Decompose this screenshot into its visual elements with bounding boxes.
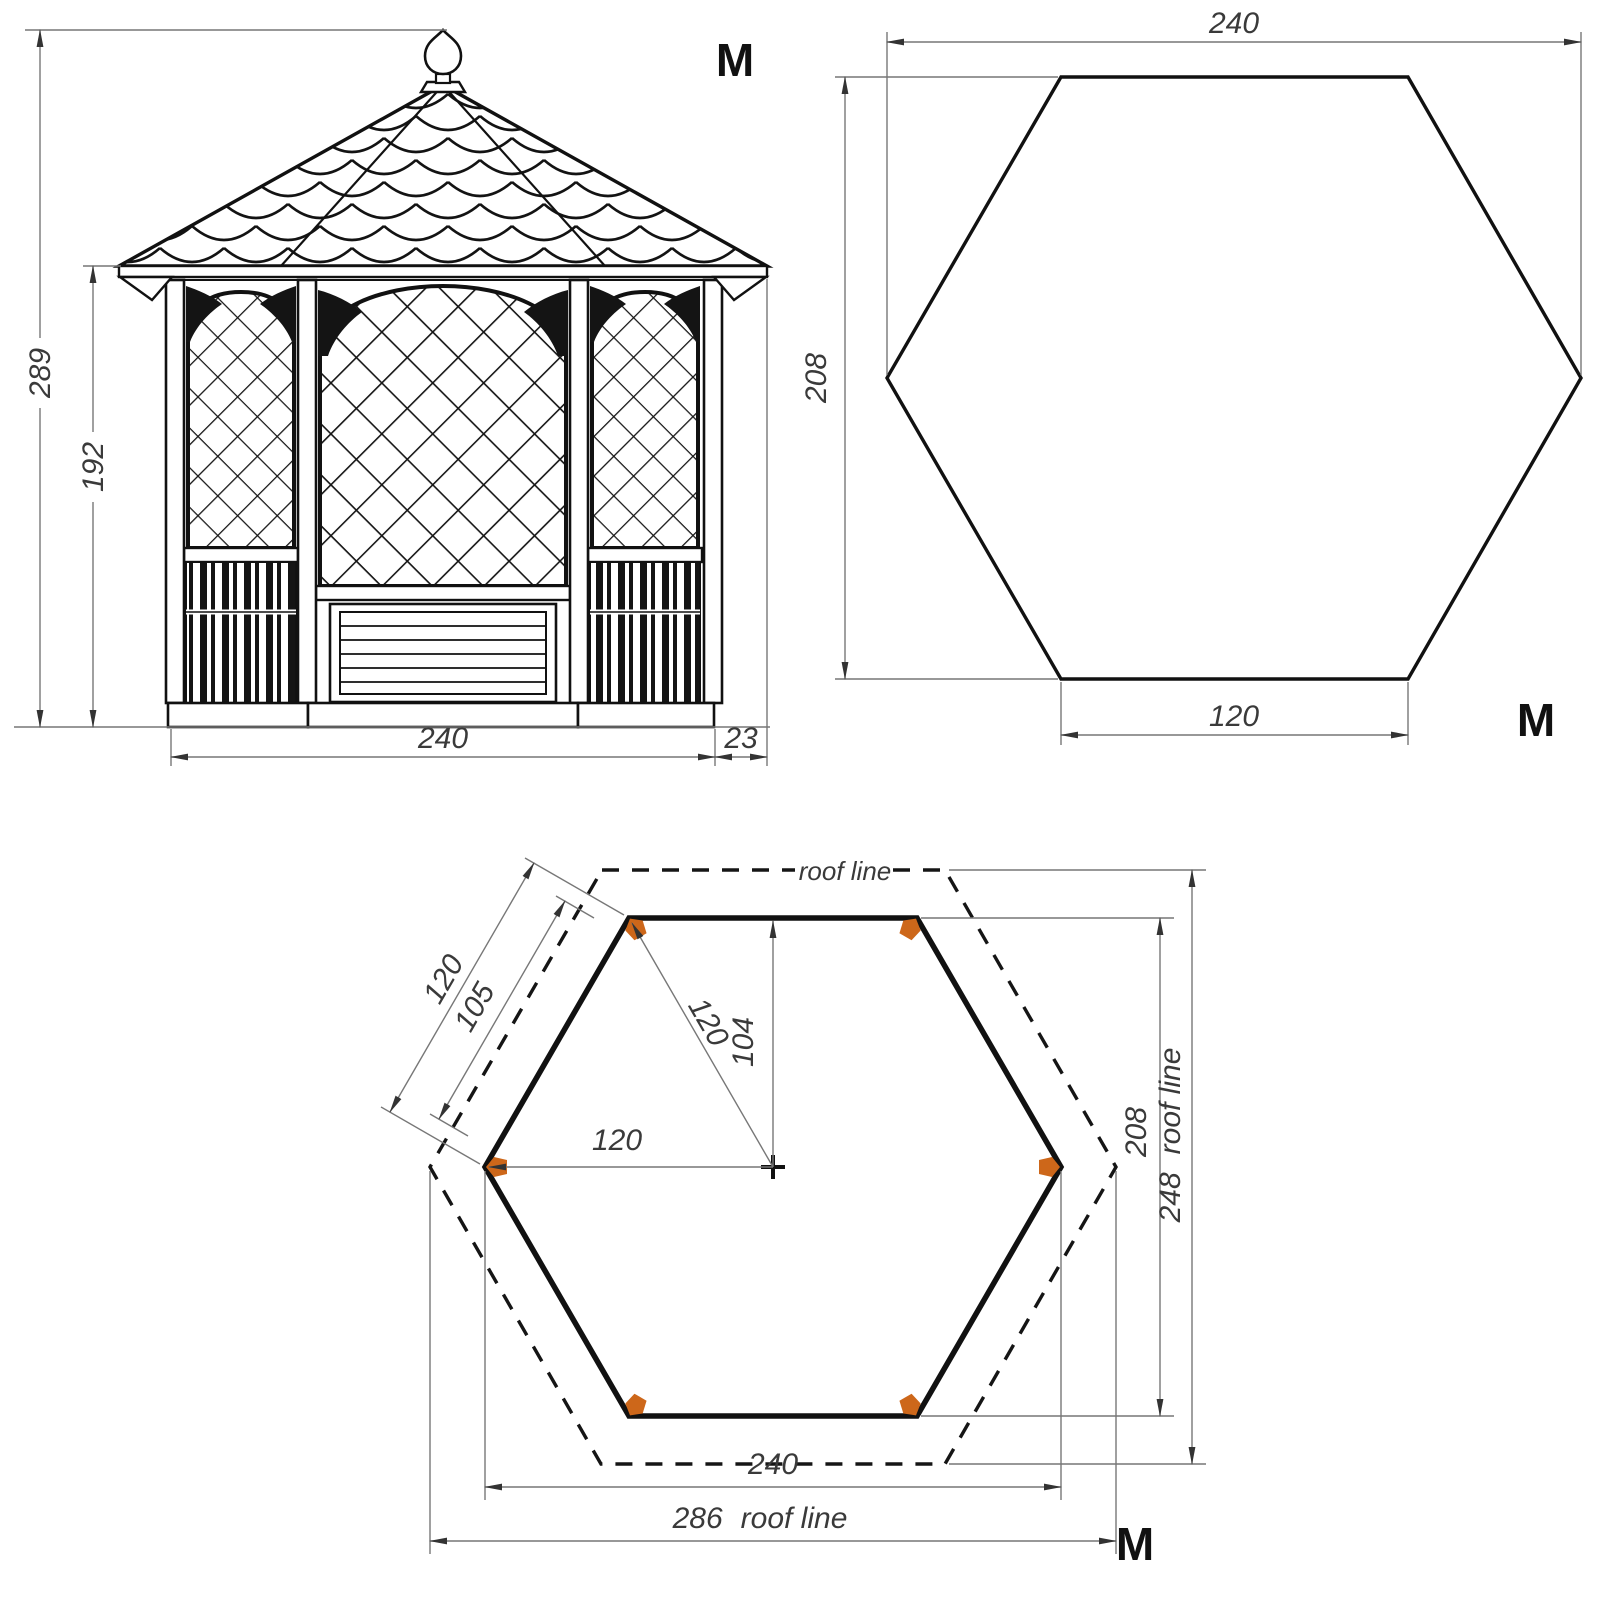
post-inner-left (298, 280, 316, 703)
mid-rail (316, 586, 570, 600)
roof-line-top-label: roof line (799, 856, 892, 886)
shingle-roof (119, 30, 767, 300)
eave-corner-left (120, 277, 172, 300)
dim-overhang-label: 23 (723, 722, 758, 755)
mid-rail (184, 548, 298, 562)
dim-roof-width-value: 286 (672, 1502, 723, 1535)
dim-width-label: 240 (1208, 7, 1259, 40)
lattice-right (592, 292, 698, 548)
drawing-sheet: 289 192 240 23 M 240 208 (0, 0, 1600, 1600)
view-marker-plan: M (1517, 694, 1555, 746)
dim-wall-height-label: 192 (77, 442, 110, 492)
dim-roof-height-label: 248roof line (1154, 1048, 1187, 1224)
dim-roof-height-value: 248 (1154, 1172, 1187, 1223)
front-elevation-view: 289 192 240 23 M (14, 30, 770, 766)
dim-width-label: 240 (747, 1448, 798, 1481)
dim-height-label: 208 (800, 353, 833, 404)
gazebo-technical-drawing: 289 192 240 23 M 240 208 (0, 0, 1600, 1600)
mid-rail (588, 548, 702, 562)
post-inner-right (570, 280, 588, 703)
dim-height-label: 208 (1120, 1107, 1153, 1158)
dim-side-line (390, 863, 534, 1112)
width-dimensions: 240 286roof line (430, 1171, 1116, 1554)
corner-post-right (704, 280, 722, 703)
skid-left (168, 703, 308, 727)
dim-total-height-label: 289 (24, 348, 57, 399)
lattice-left (188, 292, 294, 548)
center-lattice-panel (316, 286, 570, 702)
right-lattice-panel (588, 286, 702, 703)
dim-roof-width-label: 286roof line (672, 1502, 848, 1535)
skid-right (578, 703, 714, 727)
foundation-plan-view: roof line 120 104 120 (381, 856, 1206, 1570)
finial-ball (425, 30, 461, 74)
fascia-board (119, 266, 767, 277)
plan-hexagon-view: 240 208 120 M (800, 7, 1581, 746)
fish-scale-shingles (119, 85, 767, 266)
dim-apothem-label: 104 (727, 1017, 760, 1067)
view-marker-foundation: M (1116, 1518, 1154, 1570)
edge-dimensions: 120 105 (381, 858, 624, 1164)
dim-half-width-label: 120 (592, 1124, 642, 1157)
center-geometry: 120 104 120 (489, 921, 785, 1179)
finial-neck (436, 74, 450, 83)
left-lattice-panel (184, 286, 298, 703)
dim-roof-height-text: roof line (1154, 1048, 1187, 1155)
baluster-skirt (590, 562, 700, 703)
floor-hexagon (887, 77, 1581, 679)
ext-panel-bottom (430, 1114, 468, 1136)
ext-edge-bottom (381, 1107, 480, 1164)
baluster-skirt (186, 562, 296, 703)
lattice-center (320, 286, 566, 586)
dim-roof-width-text: roof line (741, 1502, 848, 1535)
view-marker-elevation: M (716, 34, 754, 86)
corner-post-left (166, 280, 184, 703)
dim-width-label: 240 (417, 722, 468, 755)
dim-side-label: 120 (1209, 700, 1259, 733)
